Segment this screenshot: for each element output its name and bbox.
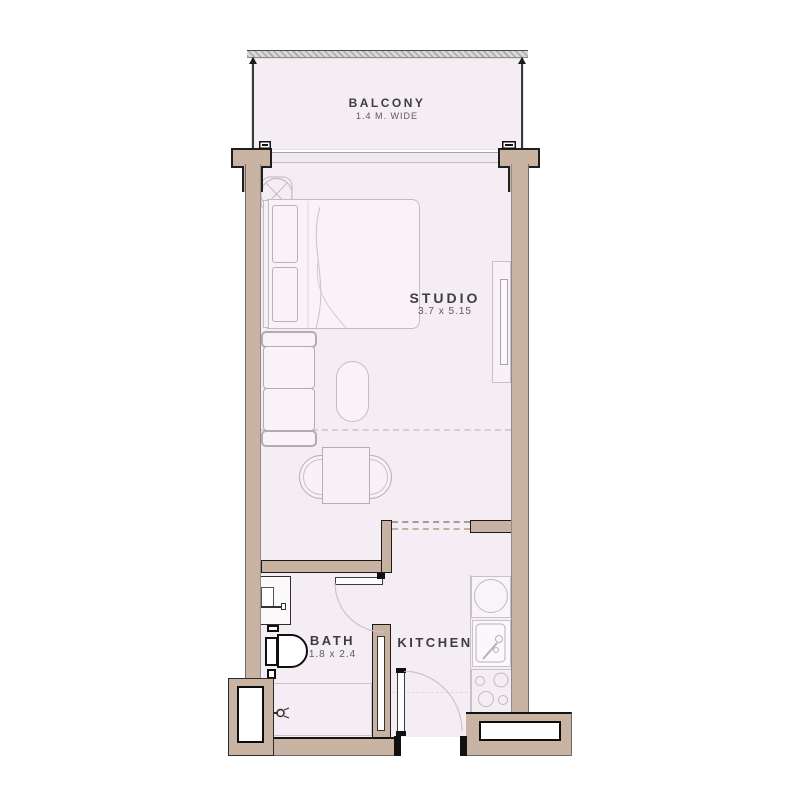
studio-label: STUDIO	[385, 290, 505, 308]
wall-bath-top	[261, 560, 385, 573]
balcony-dims: 1.4 M. WIDE	[317, 111, 457, 122]
bath-label: BATH	[285, 633, 380, 649]
balcony-left-edge	[252, 58, 254, 148]
bath-door-swing-arc	[333, 583, 387, 635]
entry-opening-cap-left	[394, 736, 401, 756]
floor-plan: BALCONY 1.4 M. WIDE	[0, 0, 800, 800]
cooktop	[471, 669, 512, 713]
dining-table	[322, 447, 370, 504]
washing-machine-drum	[474, 579, 508, 613]
balcony-edge-arrow-left-icon	[249, 57, 257, 64]
bath-dims: 1.8 x 2.4	[285, 649, 380, 662]
balcony-label: BALCONY	[317, 96, 457, 111]
washbasin-tap	[261, 606, 283, 608]
kitchen-opening-dashed-line-2	[392, 528, 470, 530]
toilet-flush-plate	[267, 625, 279, 632]
window-frame-tick-right	[502, 141, 516, 149]
balcony-edge-arrow-right-icon	[518, 57, 526, 64]
duct-shaft-left	[237, 686, 264, 743]
ottoman	[336, 361, 369, 422]
entry-opening-cap-right	[460, 736, 467, 756]
bath-door-hinge	[377, 573, 385, 579]
entry-door-swing-arc	[403, 671, 465, 733]
wall-hall-stub	[381, 520, 392, 573]
balcony-window	[272, 152, 498, 163]
wall-bottom-left-segment	[272, 737, 400, 756]
sofa-cushion-2	[263, 388, 315, 431]
duct-shaft-right	[479, 721, 561, 741]
studio-dims: 3.7 x 5.15	[385, 306, 505, 319]
balcony-railing	[247, 50, 528, 58]
washbasin-tap-knob	[281, 603, 286, 610]
sofa-cushion-1	[263, 346, 315, 389]
balcony-right-edge	[521, 58, 523, 148]
washbasin-sink	[261, 587, 274, 608]
kitchen-opening-dashed-line-1	[392, 521, 470, 523]
window-frame-tick-left	[259, 141, 271, 149]
wall-left	[245, 164, 261, 680]
wall-right	[511, 164, 529, 714]
sofa-arm-bottom	[261, 430, 317, 447]
wall-kitchen-top	[470, 520, 512, 533]
kitchen-label: KITCHEN	[385, 635, 485, 651]
